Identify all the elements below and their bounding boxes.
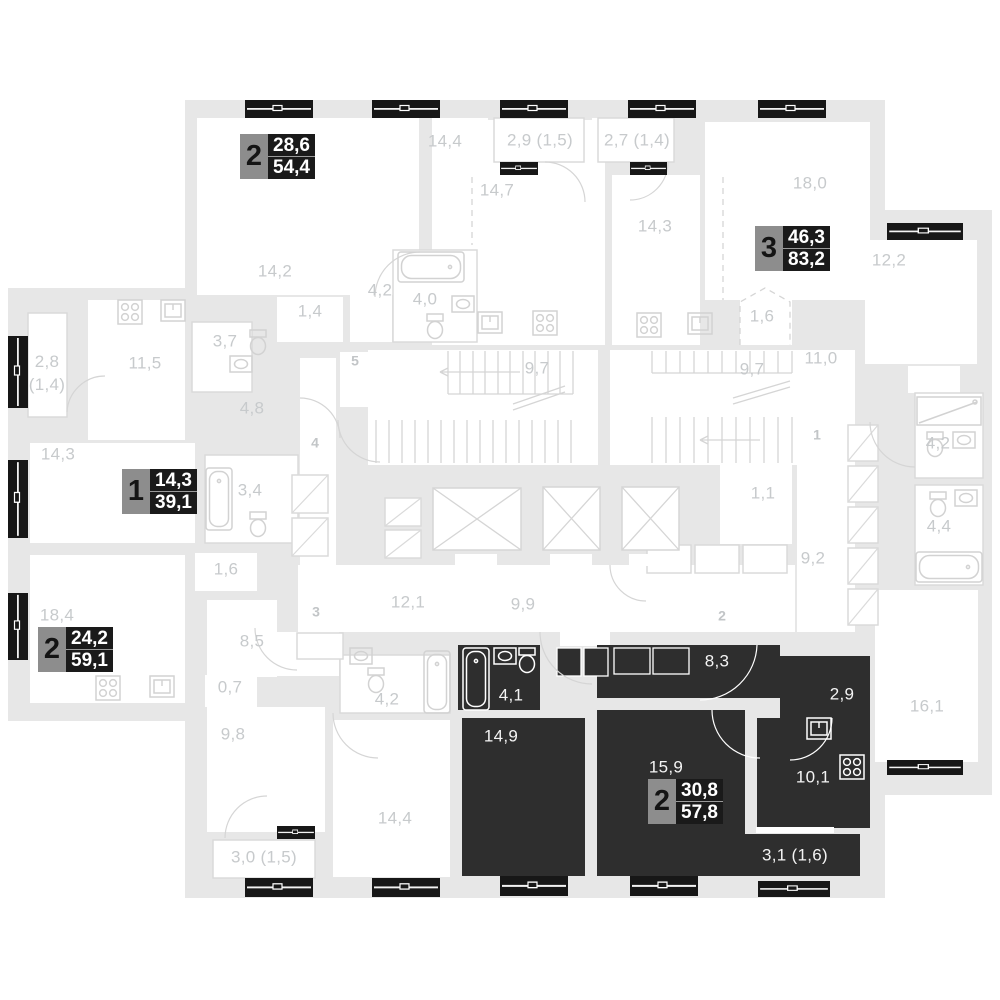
total-area: 39,1 [150, 491, 197, 513]
living-area: 24,2 [66, 628, 113, 649]
room-area-label: 15,9 [649, 757, 683, 780]
elevators [433, 487, 679, 566]
corridor-number-label: 5 [351, 352, 359, 371]
apartment-badge[interactable]: 228,654,4 [240, 134, 315, 179]
living-area: 30,8 [676, 780, 723, 801]
floorplan: 14,21,414,42,9 (1,5)14,72,7 (1,4)14,318,… [0, 0, 1000, 1000]
room-area-label: 1,1 [751, 483, 776, 506]
apartment-rooms-count: 1 [122, 469, 150, 514]
apartment-areas: 46,383,2 [783, 226, 830, 271]
room-area-label: 1,6 [750, 306, 775, 329]
room-area-label: 14,7 [480, 180, 514, 203]
living-area: 28,6 [268, 135, 315, 156]
living-area: 14,3 [150, 470, 197, 491]
room-area-label: 2,8 (1,4) [29, 351, 65, 397]
room-area-label: 18,0 [793, 173, 827, 196]
room-area-label: 9,7 [525, 358, 550, 381]
room-area-label: 4,2 [375, 689, 400, 712]
total-area: 59,1 [66, 649, 113, 671]
room-area-label: 11,0 [804, 348, 837, 371]
room-area-label: 14,4 [378, 808, 412, 831]
room-area-label: 12,1 [391, 592, 425, 615]
room-area-label: 16,1 [910, 696, 944, 719]
room-area-label: 1,4 [298, 301, 323, 324]
apartment-badge[interactable]: 346,383,2 [755, 226, 830, 271]
apartment-rooms-count: 2 [240, 134, 268, 179]
room-area-label: 14,2 [258, 261, 292, 284]
room-area-label: 4,8 [240, 398, 265, 421]
corridor-number-label: 4 [311, 434, 319, 453]
room-area-label: 14,4 [428, 131, 462, 154]
apartment-areas: 24,259,1 [66, 627, 113, 672]
apartment-rooms-count: 3 [755, 226, 783, 271]
living-area: 46,3 [783, 227, 830, 248]
apartment-badge[interactable]: 224,259,1 [38, 627, 113, 672]
room-area-label: 4,1 [499, 685, 524, 708]
room-area-label: 2,7 (1,4) [604, 130, 670, 153]
apartment-badge[interactable]: 114,339,1 [122, 469, 197, 514]
room-area-label: 9,8 [221, 724, 246, 747]
room-area-label: 18,4 [40, 605, 74, 628]
room-area-label: 2,9 (1,5) [507, 130, 573, 153]
room-area-label: 3,0 (1,5) [231, 847, 297, 870]
room-area-label: 8,5 [240, 631, 265, 654]
room-area-label: 9,7 [740, 359, 765, 382]
room-area-label: 3,1 (1,6) [762, 845, 828, 868]
apartment-rooms-count: 2 [648, 779, 676, 824]
room-area-label: 1,6 [214, 559, 239, 582]
apartment-rooms-count: 2 [38, 627, 66, 672]
total-area: 83,2 [783, 248, 830, 270]
apartment-areas: 28,654,4 [268, 134, 315, 179]
apartment-areas: 30,857,8 [676, 779, 723, 824]
room-area-label: 14,3 [638, 216, 672, 239]
total-area: 57,8 [676, 801, 723, 823]
room-area-label: 12,2 [872, 250, 906, 273]
room-area-label: 8,3 [705, 651, 730, 674]
room-area-label: 4,4 [927, 516, 952, 539]
room-area-label: 0,7 [218, 677, 243, 700]
room-area-label: 10,1 [796, 767, 830, 790]
room-area-label: 3,4 [238, 480, 263, 503]
corridor-number-label: 1 [813, 426, 821, 445]
room-area-label: 2,9 [830, 684, 855, 707]
total-area: 54,4 [268, 156, 315, 178]
room-area-label: 14,9 [484, 726, 518, 749]
apartment-areas: 14,339,1 [150, 469, 197, 514]
room-area-label: 4,2 [368, 280, 393, 303]
room-area-label: 11,5 [128, 353, 161, 376]
room-area-label: 3,7 [213, 331, 238, 354]
apartment-badge[interactable]: 230,857,8 [648, 779, 723, 824]
corridor-number-label: 3 [312, 603, 320, 622]
room-area-label: 14,3 [41, 444, 75, 467]
corridor-number-label: 2 [718, 607, 726, 626]
room-area-label: 4,2 [926, 433, 951, 456]
room-area-label: 9,9 [511, 594, 536, 617]
room-area-label: 9,2 [801, 548, 826, 571]
room-area-label: 4,0 [413, 289, 438, 312]
